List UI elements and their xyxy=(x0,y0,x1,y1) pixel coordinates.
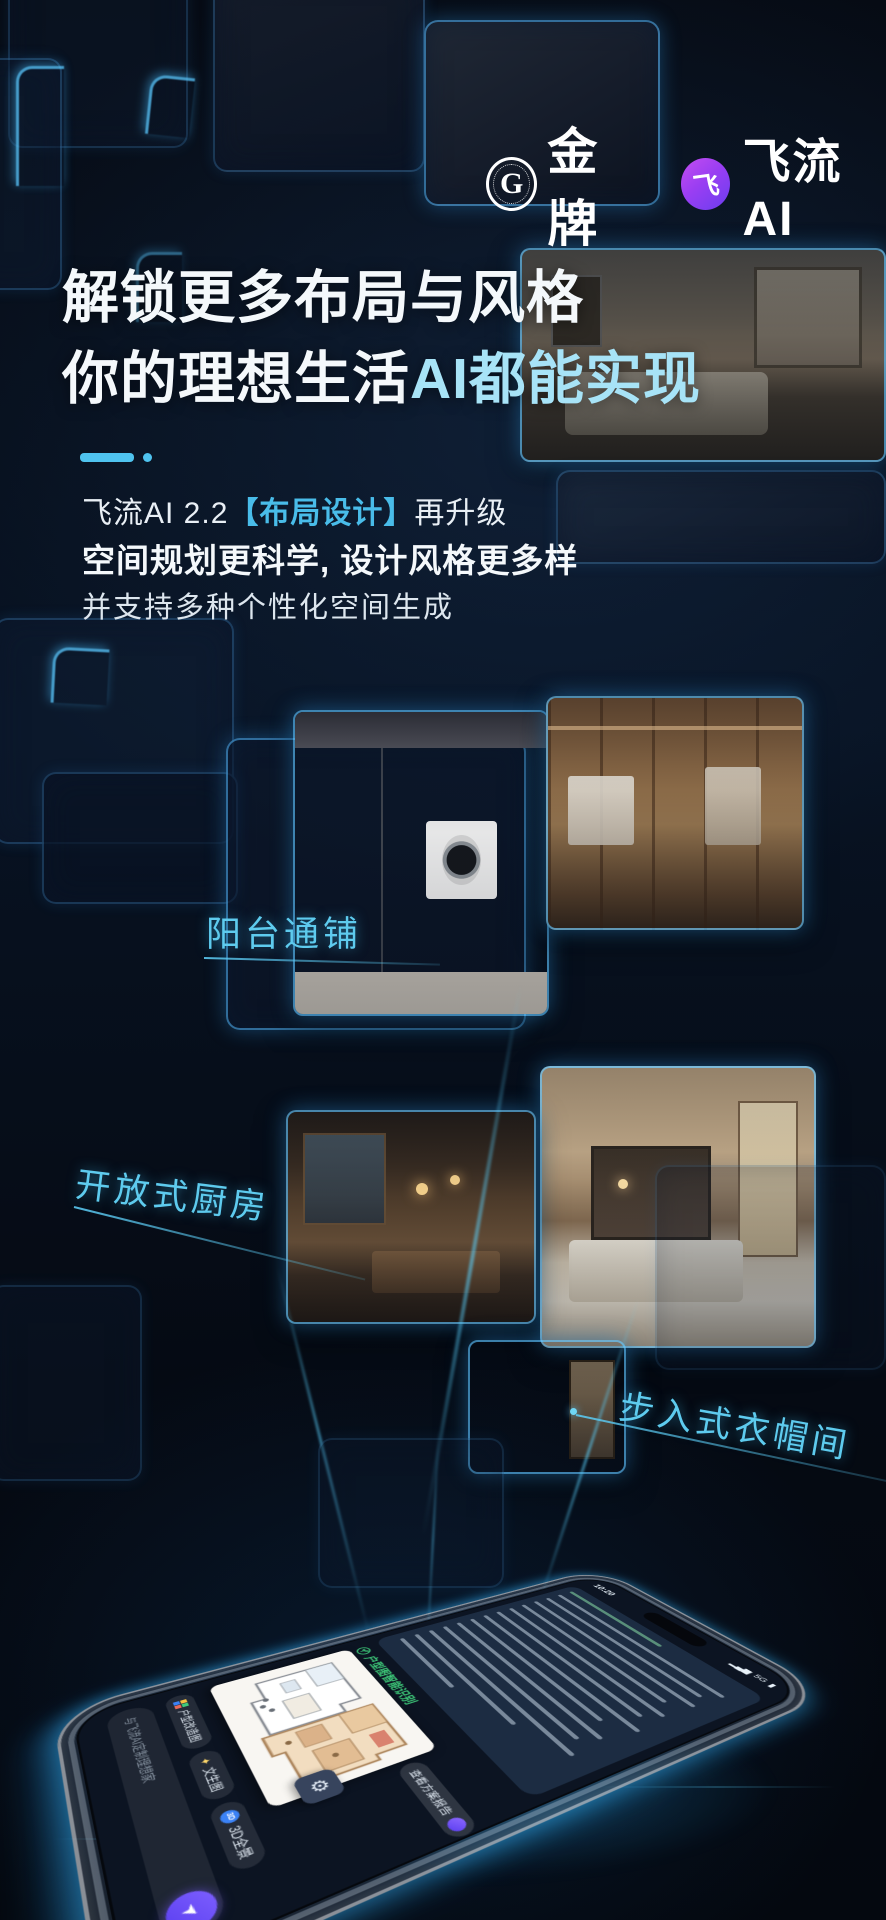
chat-text-line xyxy=(414,1634,517,1725)
kitchen-pendant xyxy=(416,1183,428,1195)
3d-badge-icon: 3D xyxy=(218,1808,242,1826)
chat-text-line xyxy=(496,1611,643,1717)
phone-mockup: 10:20 ▂▄▆ 5G ▮ xyxy=(70,1468,830,1920)
chip-label: 户型改造图 xyxy=(175,1708,206,1744)
feiliu-logo-icon: 飞 xyxy=(681,158,730,210)
photo-walkin-closet xyxy=(546,696,804,930)
chat-input-placeholder: 与飞流AI定制理想家 xyxy=(118,1707,198,1898)
brand-row: G 金牌 飞 飞流AI xyxy=(486,112,886,256)
glow-corner xyxy=(16,66,64,186)
label-kitchen: 开放式厨房 xyxy=(73,1156,273,1230)
send-button[interactable]: ➤ xyxy=(161,1884,222,1920)
subhead-highlight: 【布局设计】 xyxy=(228,497,414,530)
kitchen-pendant xyxy=(450,1175,460,1185)
chip-3d-panorama[interactable]: 3D 3D全景 xyxy=(208,1798,270,1874)
wand-icon: ✦ xyxy=(196,1756,215,1767)
subhead-line1: 飞流AI 2.2【布局设计】再升级 xyxy=(82,488,507,532)
gold-medal-logo: G xyxy=(486,157,537,211)
headline-line2-accent: AI都能实现 xyxy=(410,347,701,411)
chat-input[interactable]: 与飞流AI定制理想家 ➤ xyxy=(105,1704,230,1920)
headline-line1: 解锁更多布局与风格 xyxy=(62,258,701,339)
laundry-floor xyxy=(295,972,547,1014)
jp-pendant-lamp xyxy=(618,1179,628,1189)
kitchen-island xyxy=(372,1251,500,1293)
bedroom-window xyxy=(754,267,863,368)
glow-corner xyxy=(51,647,110,706)
subhead-version: 飞流AI 2.2 xyxy=(82,497,228,530)
headline-line2: 你的理想生活AI都能实现 xyxy=(62,339,701,420)
gold-medal-letter: G xyxy=(500,167,523,201)
poster-root: G 金牌 飞 飞流AI 解锁更多布局与风格 你的理想生活AI都能实现 飞流AI … xyxy=(0,0,886,1920)
photo-balcony-laundry xyxy=(293,710,549,1016)
headline: 解锁更多布局与风格 你的理想生活AI都能实现 xyxy=(62,258,701,420)
glass-panel xyxy=(556,470,886,564)
washing-machine xyxy=(426,821,497,900)
chip-label: 3D全景 xyxy=(224,1823,258,1862)
closet-shelf-glow xyxy=(548,726,802,730)
remodel-icon xyxy=(173,1699,189,1709)
subhead-upgrade: 再升级 xyxy=(414,497,507,530)
accent-dot xyxy=(143,453,152,462)
glass-panel xyxy=(0,1285,142,1481)
accent-dash xyxy=(80,453,134,462)
headline-line2-white: 你的理想生活 xyxy=(62,347,410,411)
glass-panel xyxy=(213,0,425,172)
photo-open-kitchen xyxy=(286,1110,536,1324)
phone-body: 10:20 ▂▄▆ 5G ▮ xyxy=(72,1574,809,1920)
closet-clothes xyxy=(568,776,634,845)
closet-clothes xyxy=(705,767,761,845)
label-closet: 步入式衣帽间 xyxy=(616,1378,855,1469)
chip-text-to-image[interactable]: ✦ 文生图 xyxy=(186,1747,237,1803)
gear-icon: ⚙ xyxy=(303,1776,336,1797)
feiliu-name: 飞流AI xyxy=(742,122,886,247)
chip-label: 文生图 xyxy=(199,1765,228,1794)
laundry-cabinet-line xyxy=(381,748,383,971)
feiliu-glyph: 飞 xyxy=(690,164,721,204)
chat-text-line xyxy=(456,1622,603,1740)
chat-text-line xyxy=(428,1630,575,1757)
subhead-line2: 空间规划更科学, 设计风格更多样 xyxy=(82,534,578,582)
kitchen-glass-cabinet xyxy=(303,1133,387,1225)
subhead-line3: 并支持多种个性化空间生成 xyxy=(82,584,454,626)
report-avatar-icon xyxy=(444,1815,470,1834)
glass-panel xyxy=(655,1165,886,1370)
send-icon: ➤ xyxy=(176,1899,206,1920)
glow-corner xyxy=(145,74,195,138)
glass-panel xyxy=(42,772,238,904)
gold-medal-name: 金牌 xyxy=(547,112,647,256)
label-balcony: 阳台通铺 xyxy=(206,906,362,957)
laundry-ceiling xyxy=(295,712,547,748)
view-report-chip[interactable]: 查看方案报告 xyxy=(395,1759,480,1841)
